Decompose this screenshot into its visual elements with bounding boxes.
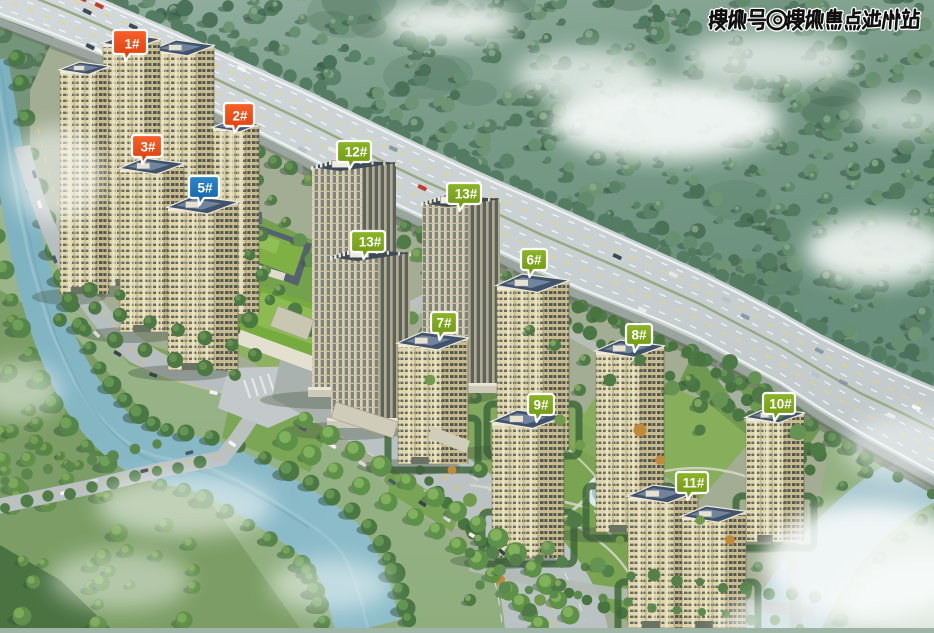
svg-text:9#: 9# — [533, 398, 549, 413]
svg-text:2#: 2# — [232, 109, 248, 124]
svg-text:11#: 11# — [683, 476, 705, 491]
svg-text:7#: 7# — [436, 316, 452, 331]
svg-text:8#: 8# — [631, 328, 647, 343]
svg-text:1#: 1# — [124, 37, 140, 52]
svg-text:3#: 3# — [140, 140, 156, 155]
svg-text:13#: 13# — [455, 187, 478, 202]
svg-text:10#: 10# — [769, 397, 792, 412]
svg-text:5#: 5# — [197, 181, 213, 196]
svg-text:6#: 6# — [526, 253, 542, 268]
svg-text:13#: 13# — [359, 235, 382, 250]
svg-text:12#: 12# — [345, 145, 368, 160]
